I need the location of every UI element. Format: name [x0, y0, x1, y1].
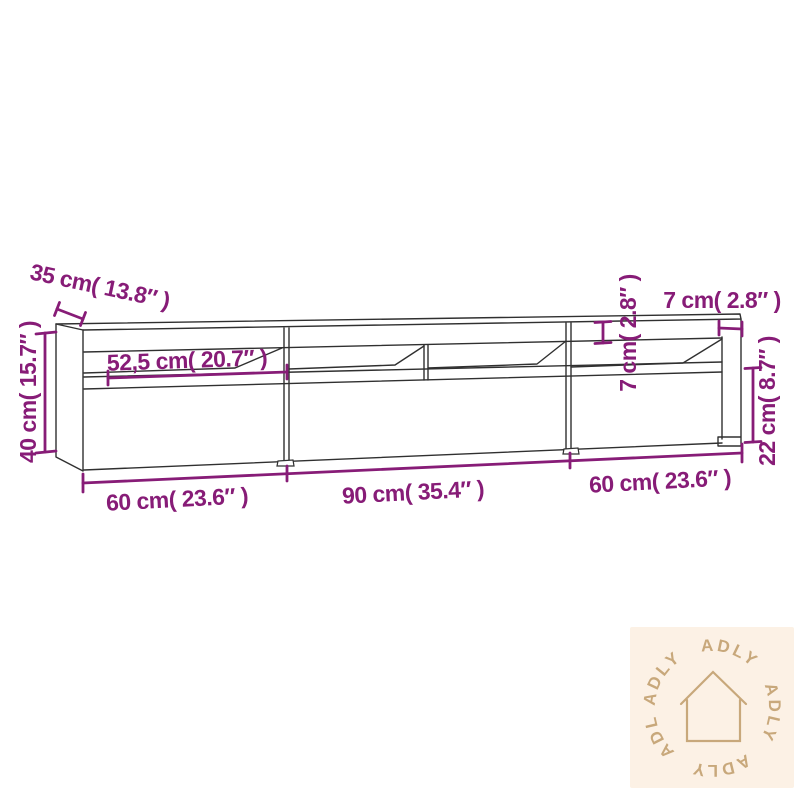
dim-label-drawer-height: 22 cm( 8.7″ ): [754, 336, 780, 466]
brand-watermark: ADLY ADLY ADLY ADLY ADLY: [0, 0, 794, 788]
product-dimension-diagram: 35 cm( 13.8″ ) 40 cm( 15.7″ ) 52,5 cm( 2…: [0, 0, 800, 800]
dim-label-width-right: 60 cm( 23.6″ ): [588, 464, 731, 497]
dimension-arrows: [36, 303, 761, 493]
shelf-floor-mid-a: [289, 346, 424, 369]
cabinet-rail-bottom: [84, 443, 722, 470]
cabinet-divider-middle-shelf: [424, 345, 428, 380]
dim-label-width-left: 60 cm( 23.6″ ): [105, 482, 248, 515]
diagram-svg: 35 cm( 13.8″ ) 40 cm( 15.7″ ) 52,5 cm( 2…: [0, 0, 800, 800]
arrow-depth-top: [55, 303, 86, 326]
cabinet-foot-left-divider: [277, 460, 294, 466]
arrow-top-depth-right: [719, 321, 742, 336]
dim-label-top-panel-height: 7 cm( 2.8″ ): [615, 274, 641, 392]
cabinet-left-panel: [56, 324, 83, 471]
dim-label-depth-top: 35 cm( 13.8″ ): [28, 259, 172, 314]
dim-label-width-middle: 90 cm( 35.4″ ): [341, 475, 484, 508]
dim-label-top-depth-right: 7 cm( 2.8″ ): [663, 287, 781, 313]
dim-label-shelf-width-left: 52,5 cm( 20.7″ ): [106, 344, 267, 376]
dim-label-height-total: 40 cm( 15.7″ ): [15, 321, 41, 463]
shelf-floor-mid-b: [428, 341, 566, 368]
